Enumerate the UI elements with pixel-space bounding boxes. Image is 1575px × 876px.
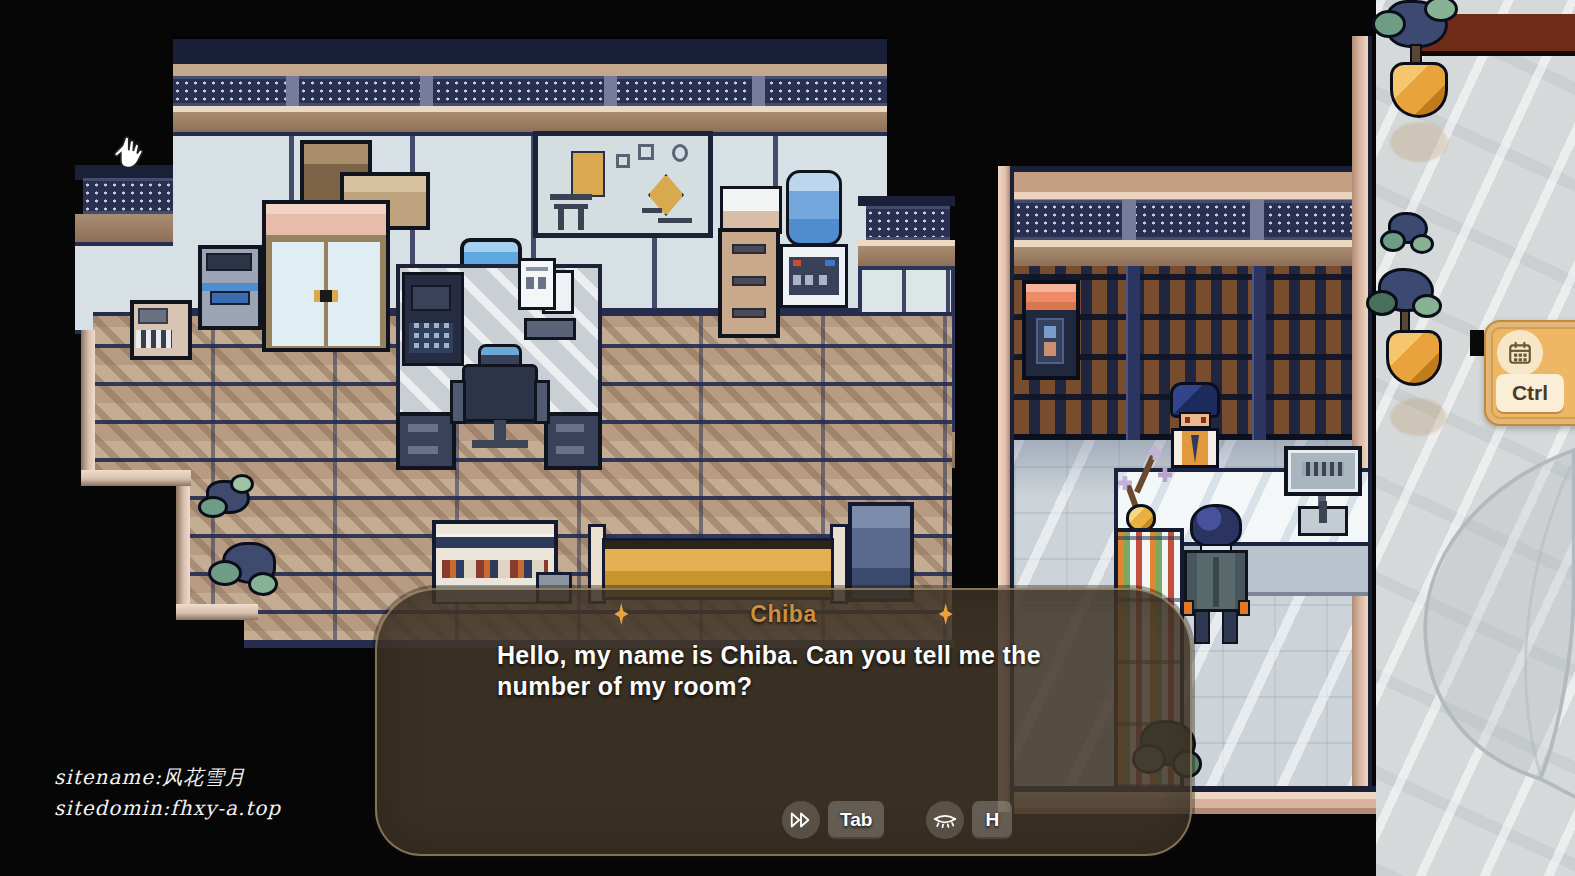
- filing-cabinet: [718, 228, 780, 338]
- walkway-leaf-motif: [1398, 430, 1575, 820]
- watermark-line-1: sitename:风花雪月: [54, 762, 281, 793]
- speaker-name: Chiba: [750, 601, 816, 628]
- office-left-wing-lattice: [83, 178, 175, 214]
- player-character[interactable]: [1184, 504, 1248, 648]
- office-right-wing-lattice: [866, 206, 950, 240]
- reception-cornice-highlight: [1014, 240, 1372, 247]
- floor-cutout: [60, 620, 244, 876]
- black-above-reception: [1014, 36, 1352, 166]
- site-watermark: sitename:风花雪月 sitedomin:fhxy-a.top: [54, 762, 281, 824]
- hide-ui-button[interactable]: [926, 801, 964, 839]
- player-hand: [1238, 600, 1250, 616]
- player-leg: [1222, 610, 1238, 644]
- calendar-icon: [1497, 330, 1543, 376]
- dialogue-controls: Tab H: [782, 800, 1012, 840]
- reception-cornice-tan: [1014, 166, 1372, 200]
- card-reader: [1298, 506, 1348, 536]
- office-right-wing-beam: [858, 246, 955, 266]
- dialogue-box[interactable]: Chiba Hello, my name is Chiba. Can you t…: [375, 588, 1192, 856]
- walkway-plant-reflection: [1390, 398, 1446, 436]
- receptionist-vest: [1171, 428, 1219, 468]
- player-hair: [1190, 504, 1242, 548]
- walkway-plant-medium: [1366, 266, 1448, 398]
- office-cornice-beam: [173, 112, 887, 132]
- office-lattice-band: [173, 76, 887, 106]
- walkway-plant-small: [1380, 208, 1438, 268]
- office-lattice-post: [752, 76, 765, 106]
- desk-tray: [524, 318, 576, 340]
- floor-plant: [208, 532, 294, 612]
- reception-lattice-post: [1250, 200, 1264, 240]
- side-seat-blue: [848, 502, 914, 602]
- office-left-wing-beam: [75, 214, 175, 242]
- hand-cursor-icon: [112, 134, 146, 172]
- fast-forward-icon: [789, 810, 813, 830]
- wardrobe-cabinet: [262, 200, 390, 352]
- wardrobe-handles: [314, 290, 338, 302]
- board-torii-sketch: [550, 194, 592, 230]
- reception-right-border: [1352, 36, 1372, 800]
- player-leg: [1194, 610, 1210, 644]
- reception-cornice-beam: [1014, 247, 1372, 266]
- office-chair-dark[interactable]: [450, 344, 550, 452]
- skip-button[interactable]: [782, 801, 820, 839]
- board-tick-doodle: [658, 218, 692, 223]
- office-lattice-post: [420, 76, 433, 106]
- board-tick-doodle: [642, 208, 662, 213]
- desk-papers: [518, 258, 580, 320]
- office-lattice-post: [604, 76, 617, 106]
- desk-drawer-left: [396, 412, 456, 470]
- reception-lattice-band: [1014, 200, 1372, 240]
- dialogue-text: Hello, my name is Chiba. Can you tell me…: [497, 640, 1059, 702]
- office-cornice-tan: [173, 64, 887, 76]
- board-square-doodle: [616, 154, 630, 168]
- plant-silhouette-fragment: [1470, 330, 1484, 356]
- office-lattice-post: [286, 76, 299, 106]
- sparkle-ornament-right-icon: [939, 603, 953, 625]
- speaker-name-row: Chiba: [377, 600, 1190, 628]
- game-viewport: Ctrl Chiba Hello, my name is Chiba. Can …: [0, 0, 1575, 876]
- wall-shelf: [720, 186, 782, 234]
- receptionist-npc[interactable]: [1168, 382, 1222, 482]
- desk-drawer-right: [544, 412, 602, 470]
- wall-phone-unit: [130, 300, 192, 360]
- copier-printer: [198, 245, 262, 330]
- walkway-plant-large: [1372, 0, 1466, 130]
- counter-flower-vase: [1114, 446, 1174, 536]
- reception-wall-post: [1252, 266, 1266, 440]
- board-square-doodle: [638, 144, 654, 160]
- counter-monitor: [1284, 446, 1362, 496]
- water-cooler: [780, 170, 848, 308]
- wall-poster-machine: [1022, 280, 1080, 380]
- wardrobe-top-shelf: [266, 204, 386, 238]
- receptionist-face: [1179, 412, 1211, 428]
- board-circle-doodle: [672, 144, 688, 162]
- walkway-plant-reflection: [1390, 122, 1448, 162]
- office-floor-edge: [81, 330, 95, 472]
- reception-lattice-post: [1122, 200, 1136, 240]
- office-floor-edge: [81, 470, 191, 486]
- ctrl-key-badge[interactable]: Ctrl: [1496, 374, 1564, 412]
- office-floor-edge: [176, 486, 190, 606]
- h-key-badge[interactable]: H: [972, 801, 1012, 839]
- sparkle-ornament-left-icon: [614, 603, 628, 625]
- cooler-body: [780, 244, 848, 308]
- watermark-line-2: sitedomin:fhxy-a.top: [54, 793, 281, 824]
- reception-wall-post: [1126, 266, 1140, 440]
- tab-key-badge[interactable]: Tab: [828, 801, 884, 839]
- bulletin-board: [533, 131, 713, 238]
- board-note-gold: [571, 151, 605, 197]
- calendar-hotkey-card[interactable]: Ctrl: [1484, 320, 1575, 426]
- office-cornice-top: [173, 36, 887, 64]
- eye-closed-icon: [932, 811, 958, 829]
- water-bottle: [786, 170, 842, 246]
- office-right-wing-cornice: [858, 196, 955, 206]
